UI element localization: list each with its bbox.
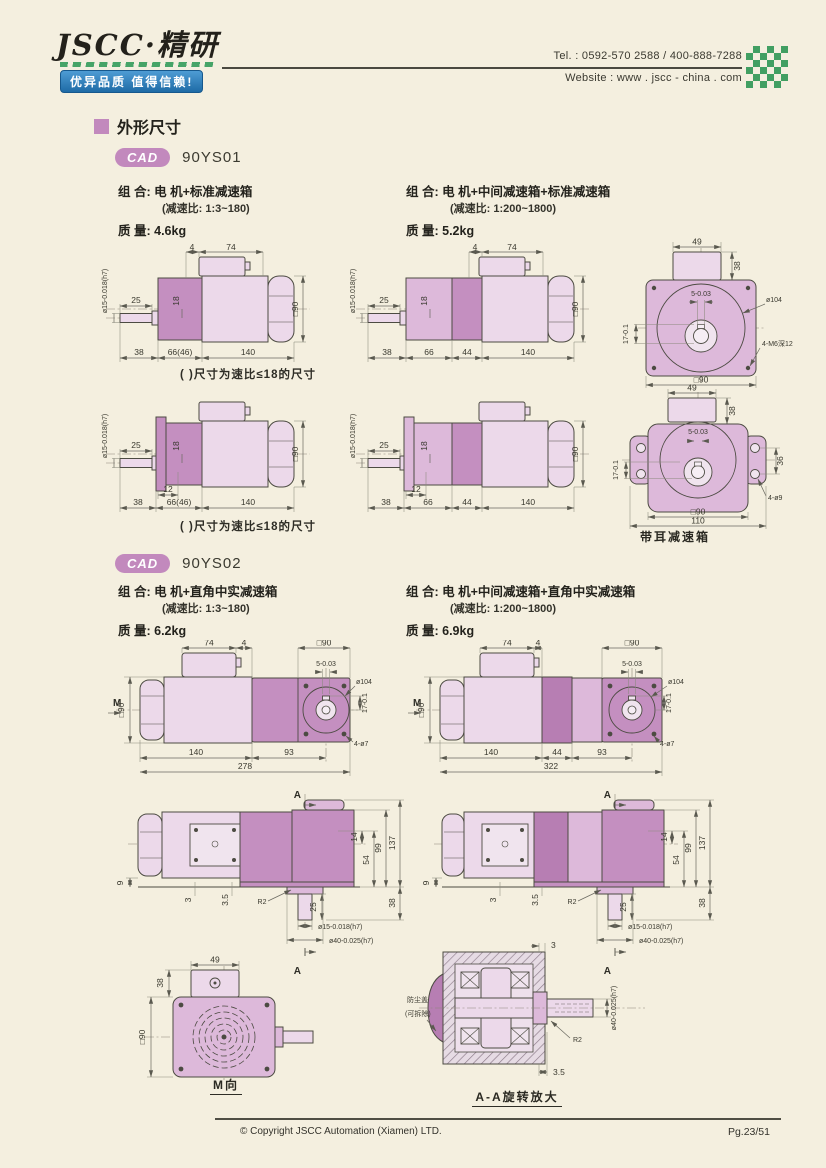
dim-label: 14 (349, 832, 359, 842)
datasheet-page: JSCC·精研 优异品质 值得信赖! Tel. : 0592-570 2588 … (0, 0, 826, 1168)
page-number: Pg.23/51 (728, 1126, 770, 1138)
dim-label: 38 (732, 261, 742, 271)
drawing-ys01-ear-side: 25 18 ø15-0.018(h7) □90 12 38 66(46) 140 (98, 396, 350, 518)
shaft-dia-label: ø15-0.018(h7) (102, 269, 109, 313)
dim-label: 74 (502, 640, 512, 648)
mass-value: 4.6kg (154, 224, 186, 238)
footer-copyright: © Copyright JSCC Automation (Xiamen) LTD… (240, 1126, 442, 1137)
dim-label: 18 (171, 441, 181, 451)
dim-label: 49 (692, 238, 702, 247)
shaft-dia-label: ø15-0.018(h7) (350, 414, 357, 458)
dim-label: 93 (597, 747, 607, 757)
dim-label: 17-0.1 (666, 693, 673, 713)
dim-label: 74 (204, 640, 214, 648)
dim-label: 4 (190, 244, 195, 252)
dim-label: □90 (137, 1029, 147, 1044)
leader-label: ø104 (668, 679, 684, 686)
dim-label: 38 (382, 347, 392, 357)
dim-label: 25 (379, 440, 389, 450)
combo-label: 组 合: (118, 185, 151, 199)
dim-label: 140 (189, 747, 203, 757)
cad-badge[interactable]: CAD (115, 554, 170, 573)
dim-label: 25 (379, 295, 389, 305)
dim-label: 38 (133, 497, 143, 507)
shaft-dia-label: ø15-0.018(h7) (350, 269, 357, 313)
ys01-header: CAD 90YS01 (115, 148, 242, 167)
ratio: (减速比: 1:200~1800) (450, 601, 635, 618)
dim-label: 54 (671, 855, 681, 865)
drawing-ys01-ear-intermediate-side: 25 18 ø15-0.018(h7) □90 12 38 66 44 140 (350, 396, 616, 518)
dim-label: 25 (618, 902, 628, 912)
model-code-ys01: 90YS01 (182, 149, 241, 166)
dim-label: 25 (131, 440, 141, 450)
dim-label: 44 (462, 347, 472, 357)
dim-label: 140 (241, 347, 255, 357)
leader-label: 4-ø9 (768, 495, 783, 502)
dim-label: □90 (416, 702, 426, 717)
dim-label: 99 (373, 843, 383, 853)
drawing-aa-section: 3 3.5 R2 ø40-0.025(h7) 防尘盖 (可拆除) (405, 936, 695, 1086)
dim-label: 322 (544, 761, 558, 771)
dim-label: 99 (683, 843, 693, 853)
combo-label: 组 合: (406, 185, 439, 199)
dim-label: 44 (462, 497, 472, 507)
company-logo: JSCC·精研 (56, 22, 219, 64)
dim-label: 36 (775, 456, 785, 466)
dim-label: 3 (183, 897, 193, 902)
dim-label: 38 (697, 898, 707, 908)
dim-label: 12 (411, 484, 421, 494)
dim-label: 74 (226, 244, 236, 252)
header-divider (222, 67, 742, 69)
leader-label: 4-ø7 (354, 741, 369, 748)
shaft-dia-label: ø40-0.025(h7) (329, 938, 373, 945)
dim-label: 278 (238, 761, 252, 771)
model-code-ys02: 90YS02 (182, 555, 241, 572)
dim-label: 3.5 (220, 894, 230, 906)
drawing-ys01-standard-front: 49 38 5-0.03 ø104 4-M6深12 17-0.1 □90 (616, 238, 812, 390)
dim-label: 17-0.1 (362, 693, 369, 713)
dim-label: 54 (361, 855, 371, 865)
dim-label: 74 (507, 244, 517, 252)
shaft-dia-label: ø15-0.018(h7) (102, 414, 109, 458)
drawing-ys01-ear-front: 49 38 5-0.03 36 4-ø9 17-0.1 □90 110 (610, 384, 815, 534)
dim-label: 66(46) (168, 347, 193, 357)
dim-label: 12 (163, 484, 173, 494)
mass-value: 5.2kg (442, 224, 474, 238)
m-view-caption: M向 (196, 1076, 256, 1093)
combo-value: 电 机+直角中实减速箱 (154, 585, 277, 599)
dim-label: □90 (570, 301, 580, 316)
dim-label: 4 (536, 640, 541, 648)
slogan-badge: 优异品质 值得信赖! (60, 70, 203, 93)
dim-label: 140 (484, 747, 498, 757)
dim-label: 4 (242, 640, 247, 648)
dim-label: 49 (687, 384, 697, 393)
aa-section-caption: A-A旋转放大 (452, 1088, 582, 1105)
dim-label: 49 (210, 956, 220, 965)
leader-label: R2 (258, 899, 267, 906)
dim-label: 38 (155, 978, 165, 988)
combo-label: 组 合: (118, 585, 151, 599)
dim-label: 44 (552, 747, 562, 757)
combo-value: 电 机+标准减速箱 (154, 185, 252, 199)
leader-label: ø104 (766, 297, 782, 304)
dim-label: □90 (116, 702, 126, 717)
mass-label: 质 量: (118, 224, 151, 238)
drawing-ys02-plan-intermediate: M □90 74 4 □90 5-0.03 ø104 17-0.1 4-ø7 1… (406, 640, 706, 780)
dim-label: 17-0.1 (613, 460, 620, 480)
dust-cover-label: (可拆除) (405, 1009, 431, 1018)
shaft-dia-label: ø15-0.018(h7) (628, 924, 672, 931)
dim-label: 3.5 (553, 1067, 565, 1077)
drawing-ys02-plan: M □90 74 4 □90 5-0.03 ø104 17-0.1 4-ø7 1… (106, 640, 398, 780)
ratio: (减速比: 1:200~1800) (450, 201, 610, 218)
leader-label: ø104 (356, 679, 372, 686)
dim-label: 66 (423, 497, 433, 507)
mass-value: 6.9kg (442, 624, 474, 638)
cad-badge[interactable]: CAD (115, 148, 170, 167)
ratio-note: ( )尺寸为速比≤18的尺寸 (128, 518, 368, 534)
dim-label: 18 (171, 296, 181, 306)
dim-label: □90 (317, 640, 332, 648)
dim-label: 9 (421, 880, 431, 885)
dim-label: 38 (387, 898, 397, 908)
dim-label: 14 (659, 832, 669, 842)
ys02-header: CAD 90YS02 (115, 554, 242, 573)
combo-value: 电 机+中间减速箱+标准减速箱 (442, 185, 610, 199)
dust-cover-label: 防尘盖 (407, 995, 428, 1004)
dim-label: 3 (488, 897, 498, 902)
dim-label: 140 (521, 347, 535, 357)
dim-label: 25 (131, 295, 141, 305)
drawing-ys01-standard-side: 4 74 25 18 ø15-0.018(h7) □90 38 66(46) 1… (98, 244, 350, 368)
footer-divider (215, 1118, 781, 1120)
dim-label: 110 (691, 516, 705, 526)
header-tel: Tel. : 0592-570 2588 / 400-888-7288 (554, 50, 742, 62)
mass-label: 质 量: (406, 224, 439, 238)
mass-label: 质 量: (118, 624, 151, 638)
dim-label: 66 (424, 347, 434, 357)
mass-label: 质 量: (406, 624, 439, 638)
dim-label: 5-0.03 (688, 429, 708, 436)
section-heading: 外形尺寸 (94, 114, 181, 138)
ys01-right-spec: 组 合: 电 机+中间减速箱+标准减速箱 (减速比: 1:200~1800) 质… (406, 184, 610, 240)
drawing-m-view: 49 38 □90 (135, 956, 315, 1082)
dim-label: 5-0.03 (622, 661, 642, 668)
section-bullet-icon (94, 119, 109, 134)
dim-label: 3.5 (530, 894, 540, 906)
drawing-ys02-side: A A 9 3 3.5 R2 25 14 54 99 137 38 ø15-0.… (110, 786, 410, 976)
drawing-ys01-intermediate-side: 4 74 25 18 ø15-0.018(h7) □90 38 66 44 14… (350, 244, 616, 368)
dim-label: 3 (551, 940, 556, 950)
dim-label: 137 (387, 836, 397, 850)
section-label: A (604, 790, 611, 801)
leader-label: R2 (573, 1037, 582, 1044)
dim-label: 4 (473, 244, 478, 252)
shaft-dia-label: ø15-0.018(h7) (318, 924, 362, 931)
dim-label: 5-0.03 (691, 291, 711, 298)
dim-label: □90 (625, 640, 640, 648)
dim-label: 18 (419, 441, 429, 451)
dim-label: 17-0.1 (623, 324, 630, 344)
section-title: 外形尺寸 (117, 114, 181, 138)
dim-label: 18 (419, 296, 429, 306)
mass-value: 6.2kg (154, 624, 186, 638)
combo-value: 电 机+中间减速箱+直角中实减速箱 (442, 585, 635, 599)
section-label: A (294, 790, 301, 801)
dim-label: 38 (134, 347, 144, 357)
ratio: (减速比: 1:3~180) (162, 201, 252, 218)
ratio: (减速比: 1:3~180) (162, 601, 277, 618)
dim-label: 38 (381, 497, 391, 507)
dim-label: 25 (308, 902, 318, 912)
leader-label: 4-M6深12 (762, 339, 793, 348)
ys01-left-spec: 组 合: 电 机+标准减速箱 (减速比: 1:3~180) 质 量: 4.6kg (118, 184, 252, 240)
dim-label: 38 (727, 406, 737, 416)
dim-label: 5-0.03 (316, 661, 336, 668)
combo-label: 组 合: (406, 585, 439, 599)
logo-underline-dashes (60, 62, 214, 67)
leader-label: R2 (568, 899, 577, 906)
ear-gearbox-caption: 带耳减速箱 (600, 528, 750, 545)
dim-label: 93 (284, 747, 294, 757)
checker-decoration-icon (746, 46, 788, 88)
dim-label: 137 (697, 836, 707, 850)
header-website[interactable]: Website : www . jscc - china . com (565, 72, 742, 84)
dim-label: □90 (694, 375, 709, 385)
shaft-dia-label: ø40-0.025(h7) (611, 986, 618, 1030)
dim-label: □90 (290, 301, 300, 316)
ratio-note: ( )尺寸为速比≤18的尺寸 (128, 366, 368, 382)
dim-label: 66(46) (167, 497, 192, 507)
ys02-left-spec: 组 合: 电 机+直角中实减速箱 (减速比: 1:3~180) 质 量: 6.2… (118, 584, 277, 640)
dim-label: □90 (570, 446, 580, 461)
dim-label: 140 (241, 497, 255, 507)
dim-label: □90 (290, 446, 300, 461)
dim-label: 140 (521, 497, 535, 507)
dim-label: 9 (115, 880, 125, 885)
ys02-right-spec: 组 合: 电 机+中间减速箱+直角中实减速箱 (减速比: 1:200~1800)… (406, 584, 635, 640)
